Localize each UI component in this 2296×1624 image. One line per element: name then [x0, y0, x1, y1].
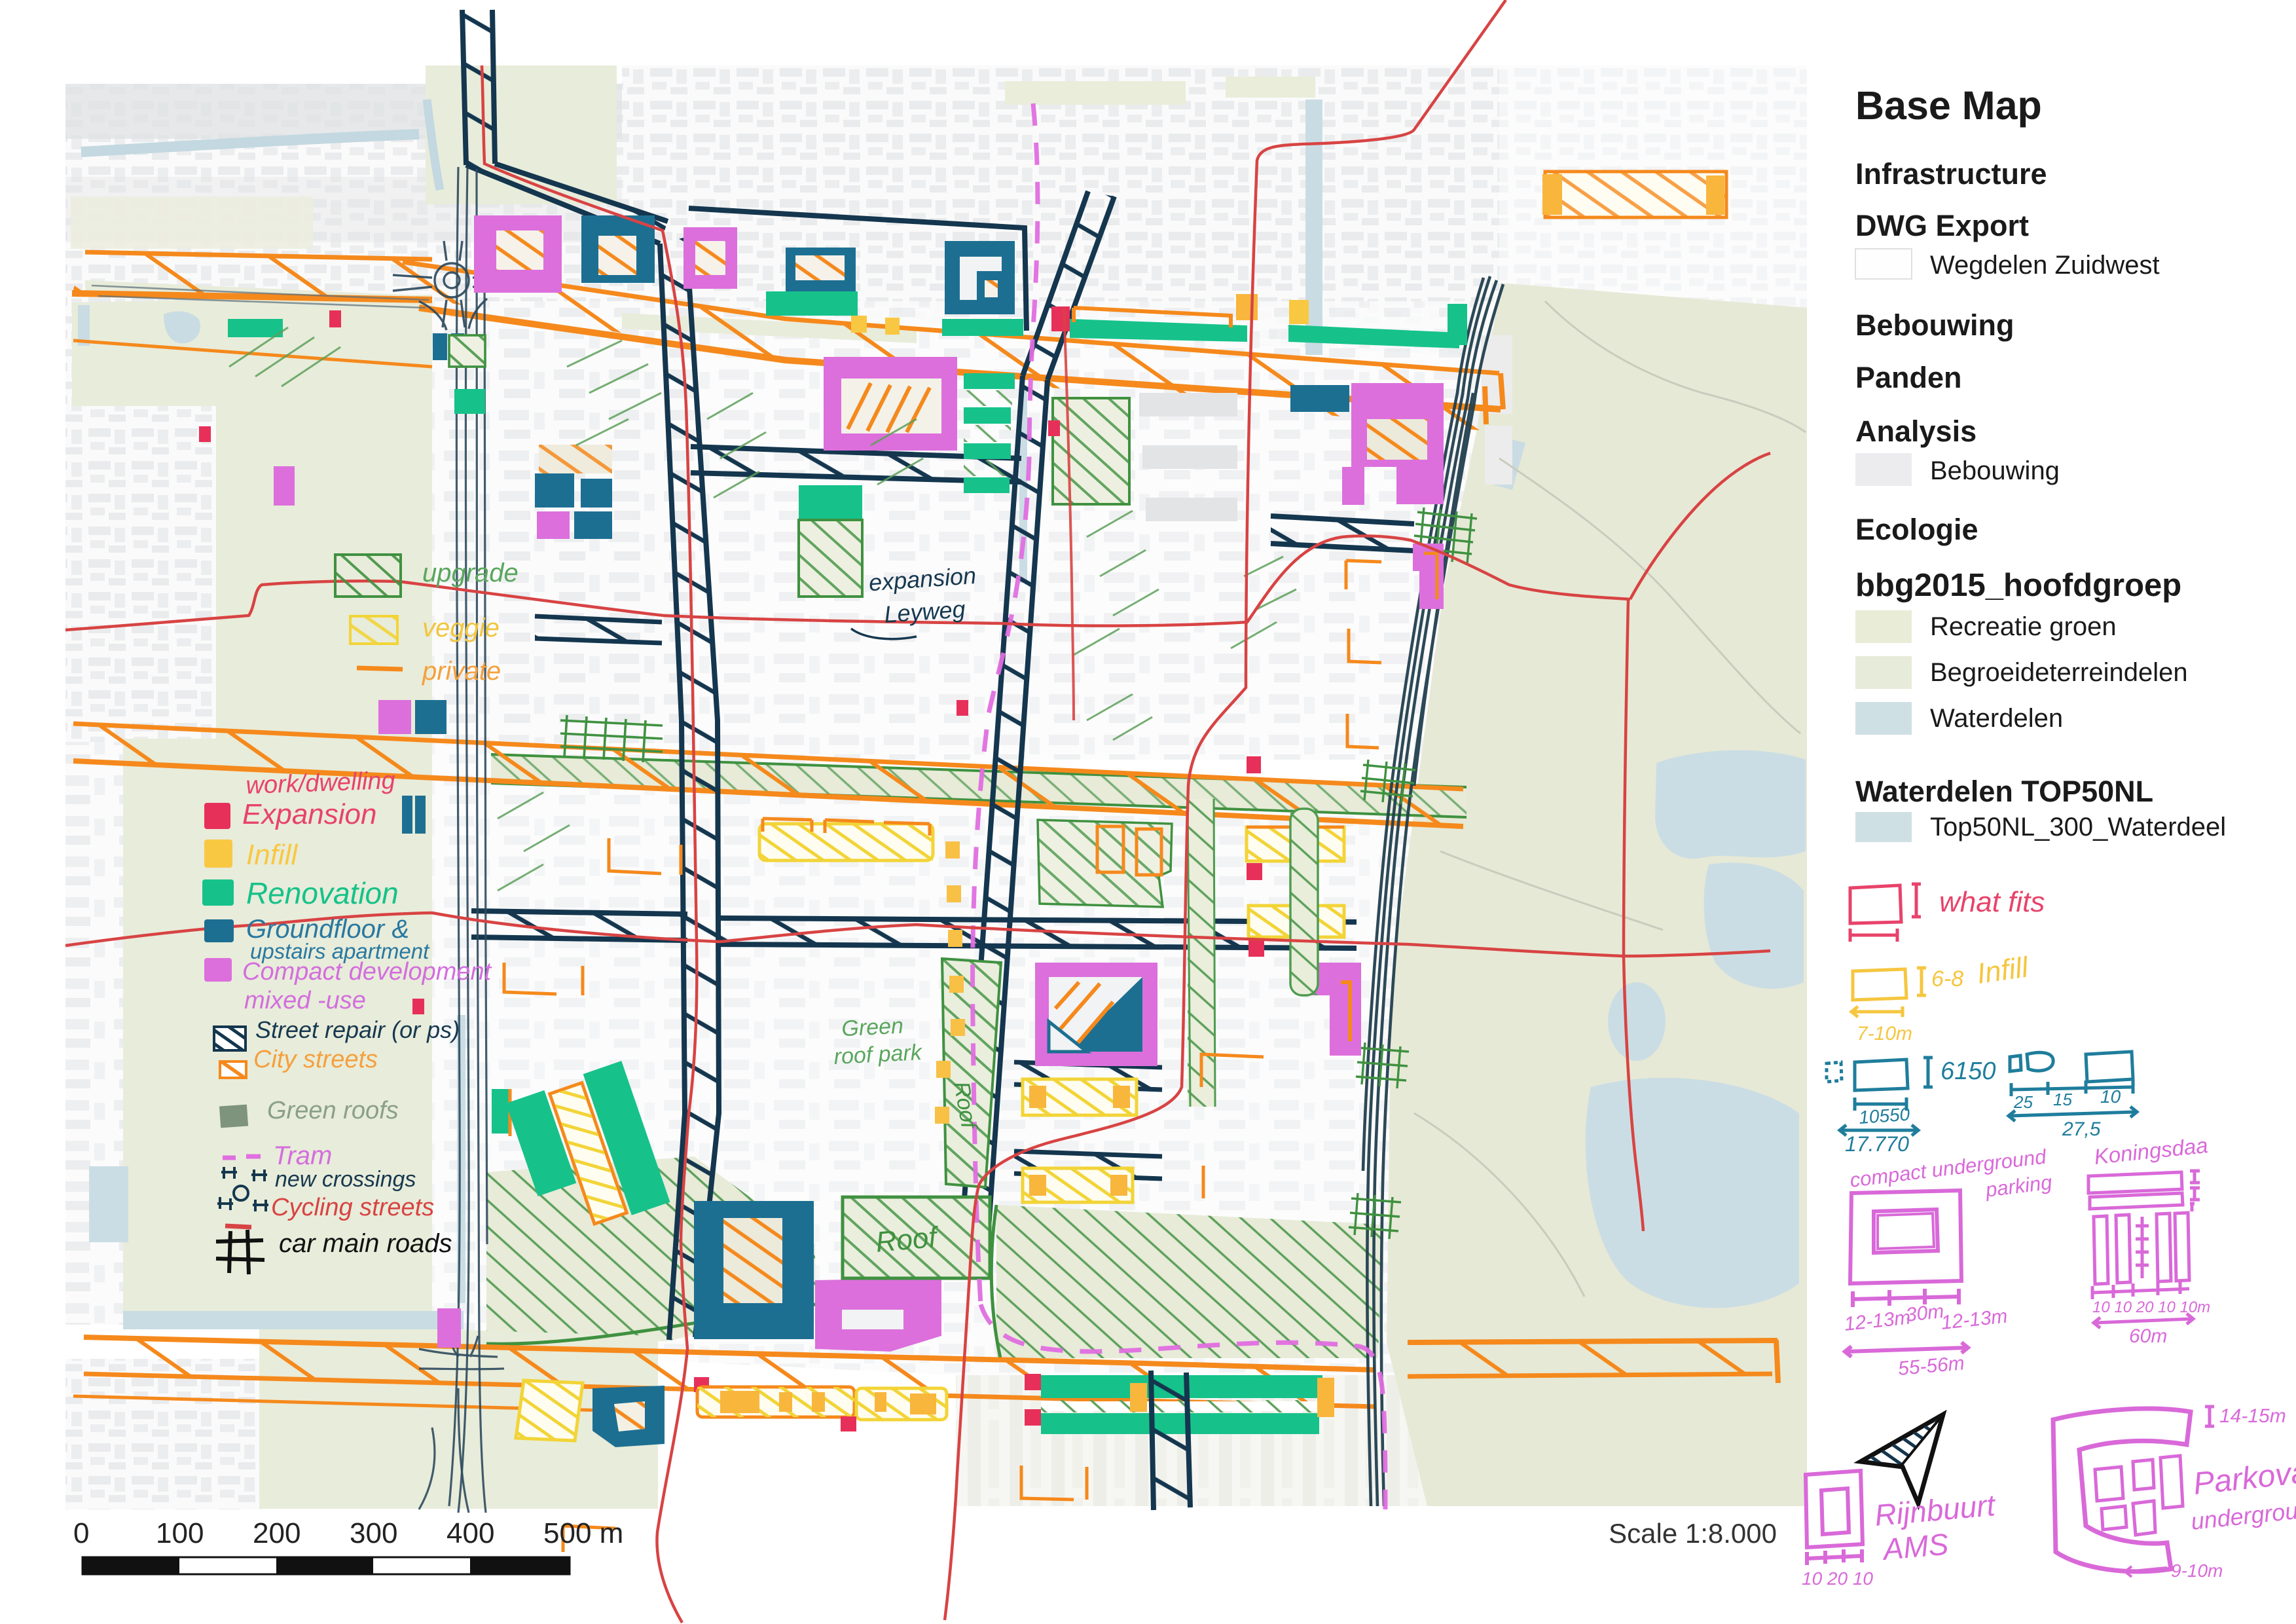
svg-text:Panden: Panden	[1855, 361, 1962, 394]
svg-text:work/dwelling: work/dwelling	[246, 767, 395, 800]
svg-text:new crossings: new crossings	[275, 1167, 416, 1192]
svg-text:10 10 20 10 10m: 10 10 20 10 10m	[2092, 1299, 2210, 1316]
svg-text:Waterdelen: Waterdelen	[1930, 704, 2063, 733]
svg-text:9-10m: 9-10m	[2171, 1560, 2223, 1581]
svg-text:roof park: roof park	[833, 1040, 924, 1069]
svg-text:400: 400	[446, 1517, 494, 1549]
svg-text:10 20 10: 10 20 10	[1802, 1568, 1873, 1589]
svg-text:10: 10	[2100, 1086, 2121, 1107]
svg-text:17.770: 17.770	[1845, 1132, 1909, 1156]
svg-text:500 m: 500 m	[543, 1517, 623, 1549]
svg-text:veggie: veggie	[422, 614, 500, 642]
svg-text:Street repair (or ps): Street repair (or ps)	[255, 1016, 460, 1043]
svg-text:Waterdelen TOP50NL: Waterdelen TOP50NL	[1855, 775, 2153, 808]
svg-text:Green roofs: Green roofs	[267, 1097, 399, 1124]
svg-text:Top50NL_300_Waterdeel: Top50NL_300_Waterdeel	[1930, 813, 2226, 841]
svg-text:14-15m: 14-15m	[2219, 1405, 2286, 1427]
svg-text:DWG Export: DWG Export	[1855, 209, 2029, 242]
svg-text:300: 300	[350, 1517, 397, 1549]
svg-text:City streets: City streets	[253, 1046, 378, 1073]
svg-text:6-8: 6-8	[1931, 967, 1963, 991]
svg-text:Cycling streets: Cycling streets	[271, 1194, 434, 1221]
svg-text:Leyweg: Leyweg	[883, 595, 966, 628]
svg-text:25: 25	[2013, 1092, 2033, 1112]
svg-text:30m: 30m	[1904, 1301, 1944, 1326]
svg-text:100: 100	[156, 1517, 204, 1549]
svg-text:Tram: Tram	[273, 1141, 332, 1170]
svg-text:27,5: 27,5	[2062, 1118, 2101, 1140]
svg-text:Compact development: Compact development	[242, 958, 492, 986]
svg-text:car main roads: car main roads	[279, 1229, 452, 1258]
svg-text:Ecologie: Ecologie	[1855, 513, 1978, 546]
svg-text:Green: Green	[841, 1013, 903, 1041]
svg-text:200: 200	[253, 1517, 301, 1549]
svg-text:Renovation: Renovation	[246, 876, 399, 910]
svg-text:what fits: what fits	[1939, 886, 2045, 918]
svg-text:7-10m: 7-10m	[1857, 1023, 1912, 1044]
svg-text:Bebouwing: Bebouwing	[1930, 456, 2060, 485]
svg-text:6150: 6150	[1941, 1058, 1996, 1085]
svg-text:Scale 1:8.000: Scale 1:8.000	[1609, 1518, 1777, 1549]
svg-text:private: private	[422, 657, 501, 686]
svg-text:Recreatie groen: Recreatie groen	[1930, 612, 2117, 641]
svg-text:15: 15	[2053, 1090, 2072, 1109]
svg-text:Begroeideterreindelen: Begroeideterreindelen	[1930, 658, 2188, 687]
svg-text:mixed -use: mixed -use	[244, 987, 366, 1014]
svg-text:Infrastructure: Infrastructure	[1855, 157, 2047, 191]
svg-text:Base Map: Base Map	[1855, 83, 2042, 128]
svg-text:AMS: AMS	[1880, 1526, 1950, 1566]
svg-text:Bebouwing: Bebouwing	[1855, 308, 2014, 342]
svg-text:bbg2015_hoofdgroep: bbg2015_hoofdgroep	[1855, 568, 2181, 603]
svg-text:60m: 60m	[2129, 1325, 2167, 1347]
svg-text:Wegdelen Zuidwest: Wegdelen Zuidwest	[1930, 251, 2160, 280]
svg-text:0: 0	[73, 1517, 89, 1549]
svg-text:Infill: Infill	[246, 839, 298, 871]
svg-text:Roof: Roof	[875, 1221, 941, 1259]
svg-text:Analysis: Analysis	[1855, 415, 1977, 448]
svg-text:10550: 10550	[1858, 1104, 1910, 1128]
svg-text:upgrade: upgrade	[422, 559, 519, 587]
svg-text:Expansion: Expansion	[242, 798, 376, 830]
